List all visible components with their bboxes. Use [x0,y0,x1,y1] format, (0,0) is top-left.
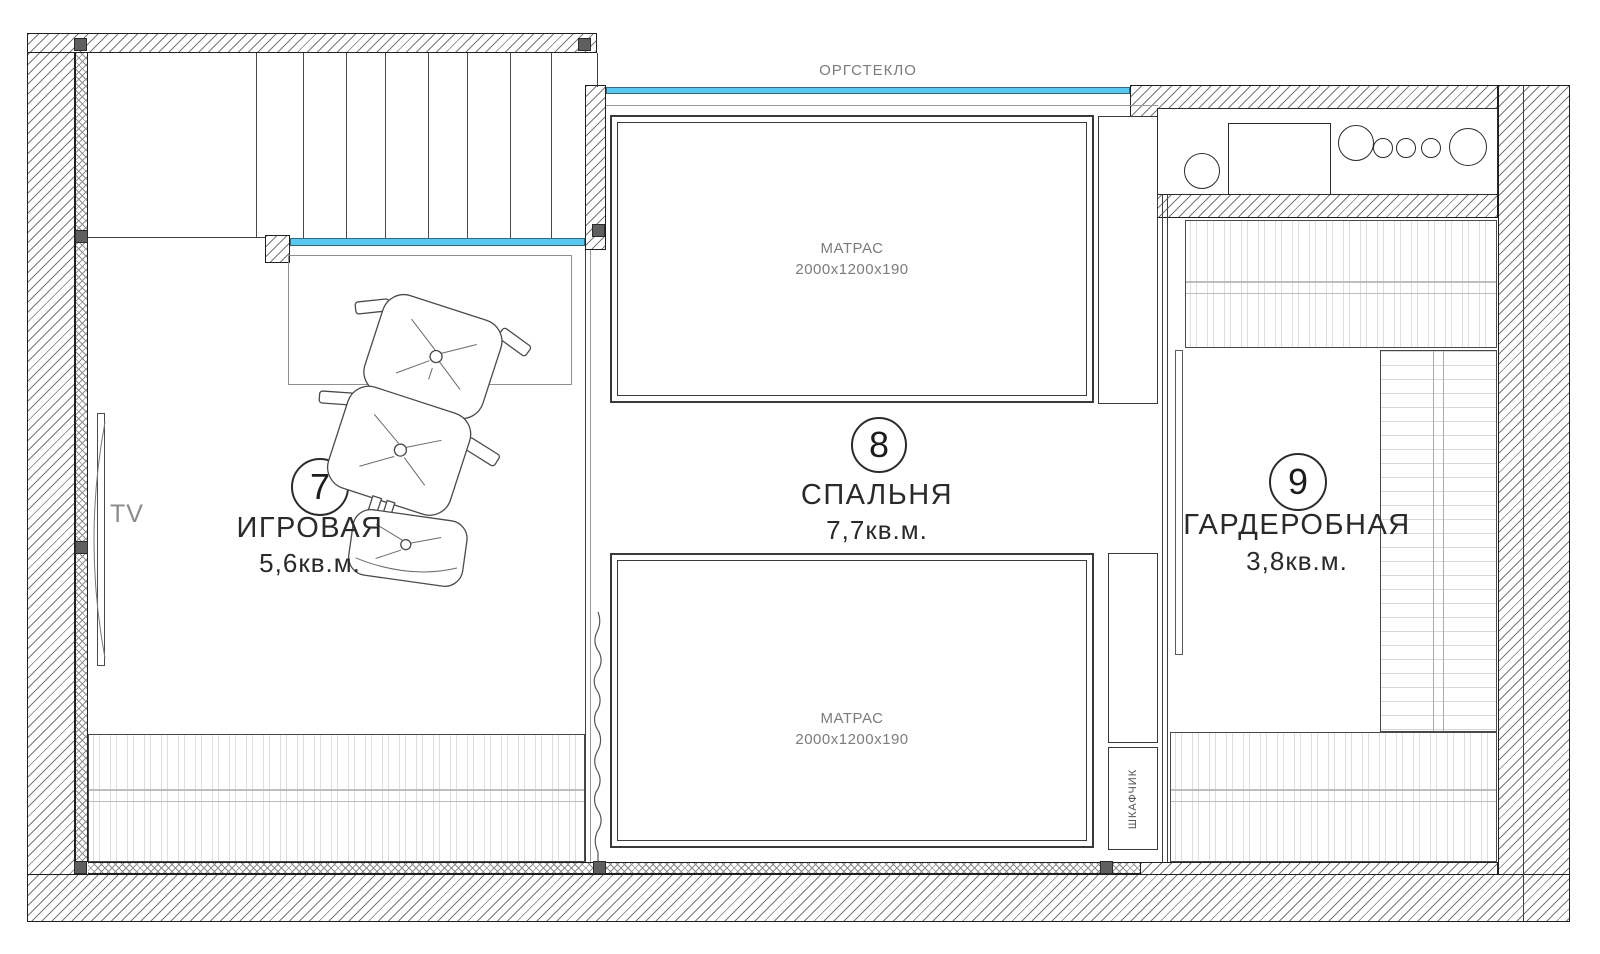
stair-tread-line [428,53,429,238]
partition-line [585,250,586,862]
floor-plan: TV 7 ИГРОВАЯ 5,6кв.м. ОРГСТЕКЛО МАТРАС 2… [0,0,1600,954]
section-marker [75,541,88,554]
mattress-bottom-label: МАТРАС 2000х1200х190 [610,708,1094,750]
mattress-top-label: МАТРАС 2000х1200х190 [610,238,1094,280]
tv-label: TV [110,500,144,529]
room-number-circle: 8 [851,417,907,473]
wardrobe-hangers-bottom [1170,732,1497,862]
vanity-box [1228,123,1331,195]
stair-glass-railing [290,238,585,246]
room-area: 3,8кв.м. [1167,546,1427,577]
wall-top-stairs [27,33,597,53]
stair-tread-line [551,53,552,238]
bedside-cabinet [1108,553,1158,743]
section-marker [593,861,606,874]
small-cabinet: ШКАФЧИК [1108,747,1158,850]
mattress-name: МАТРАС [610,238,1094,259]
tv-bracket [78,418,108,662]
glass-partition [606,87,1130,94]
mattress-name: МАТРАС [610,708,1094,729]
room-name: ИГРОВАЯ [190,512,430,545]
round-item [1338,125,1374,161]
round-item [1184,153,1220,189]
room-area: 7,7кв.м. [757,515,997,546]
wardrobe-hangers-top [1185,220,1497,348]
section-marker [75,230,88,243]
round-item [1373,138,1393,158]
stair-tread-line [510,53,511,238]
section-marker [74,38,87,51]
stair-tread-line [346,53,347,238]
shelf-divider [1443,351,1444,731]
bedroom-inner-top-line [606,105,1158,106]
partition-line [1162,108,1163,862]
mattress-bottom [610,553,1094,848]
wall-bottom-step-right [1140,862,1498,875]
round-item [1396,138,1416,158]
room-number-circle: 9 [1269,453,1327,511]
stair-tread-line [385,53,386,238]
closet-rod [89,801,584,802]
room-name: ГАРДЕРОБНАЯ [1167,509,1427,542]
round-item [1421,138,1441,158]
wall-bottom-insulation [88,862,1140,874]
stair-landing-edge [88,237,265,238]
mattress-dimensions: 2000х1200х190 [610,729,1094,750]
mattress-dimensions: 2000х1200х190 [610,259,1094,280]
room-number: 9 [1271,455,1325,509]
closet-rod [89,789,584,791]
room-name: СПАЛЬНЯ [757,479,997,512]
curtain-wavy-line [590,612,606,862]
closet-rod [1186,293,1496,294]
mattress-inner-border [617,560,1087,841]
bean-bag-chair [325,296,525,526]
section-marker [1100,861,1113,874]
small-cabinet-label: ШКАФЧИК [1127,759,1139,839]
stair-tread-line [467,53,468,238]
sliding-door-track [1175,350,1183,655]
wall-bottom [27,874,1570,922]
game-room-closet-hangers [88,734,585,862]
glass-partition-label: ОРГСТЕКЛО [606,62,1130,79]
bedside-shelf-top [1098,116,1158,404]
room-area: 5,6кв.м. [190,548,430,579]
stair-rail-post [265,235,290,263]
stair-tread-line [303,53,304,238]
wall-left [27,33,75,922]
wall-step-line [597,53,598,87]
closet-rod [1171,789,1496,791]
shelf-divider [1433,351,1434,731]
closet-rod [1171,801,1496,802]
vanity-niche [1157,108,1498,195]
stair-tread-line [256,53,257,238]
room-number: 8 [853,419,905,471]
section-marker [578,38,591,51]
wall-right-layer-line [1523,86,1524,921]
wall-right [1498,85,1570,922]
partition-line [1167,108,1168,862]
round-item [1449,128,1487,166]
closet-rod [1186,281,1496,283]
section-marker [74,861,87,874]
section-marker [592,224,605,237]
